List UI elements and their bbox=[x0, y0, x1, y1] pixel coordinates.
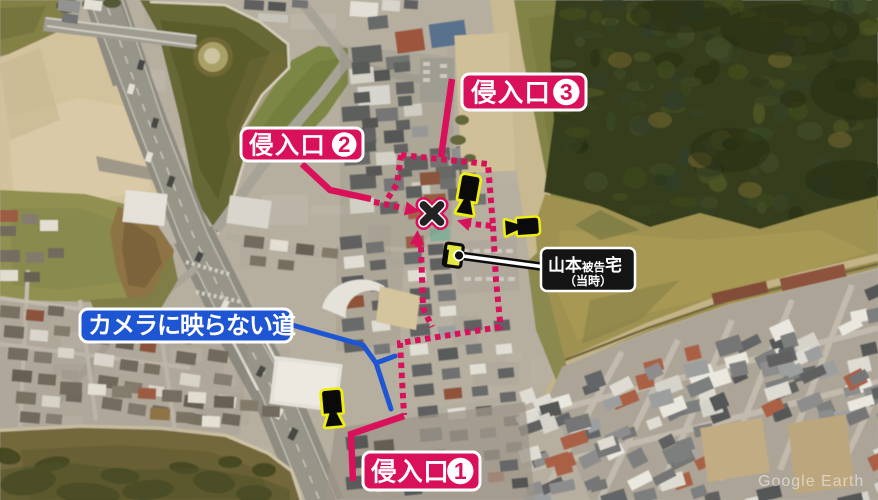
svg-text:2: 2 bbox=[338, 132, 350, 157]
svg-text:1: 1 bbox=[454, 458, 467, 484]
svg-text:3: 3 bbox=[560, 79, 573, 105]
svg-text:侵入口: 侵入口 bbox=[248, 132, 326, 160]
svg-text:カメラに映らない道: カメラに映らない道 bbox=[88, 312, 296, 340]
svg-text:侵入口: 侵入口 bbox=[470, 79, 551, 107]
svg-text:（当時）: （当時） bbox=[564, 273, 612, 288]
svg-text:侵入口: 侵入口 bbox=[370, 458, 449, 486]
svg-text:Google Earth: Google Earth bbox=[758, 473, 864, 490]
